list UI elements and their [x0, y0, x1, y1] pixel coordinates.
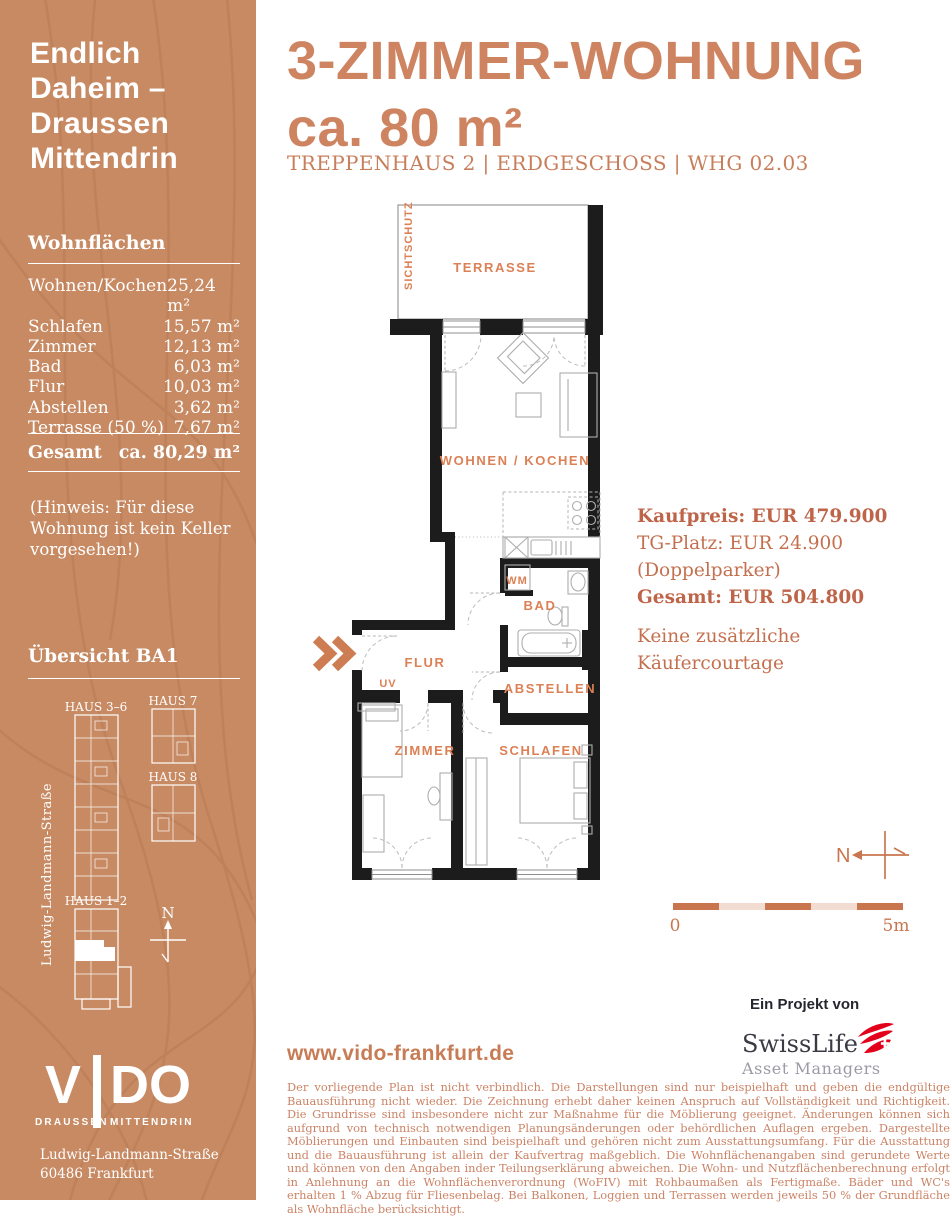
- campaign-headline: Endlich Daheim – Draussen Mittendrin: [30, 36, 178, 176]
- headline-line: Endlich: [30, 36, 178, 71]
- svg-text:N: N: [836, 845, 850, 867]
- vido-logo: V DO DRAUSSEN MITTENDRIN: [33, 1046, 233, 1141]
- living-area-table: Wohnen/Kochen25,24 m² Schlafen15,57 m² Z…: [28, 276, 240, 438]
- row-label: Abstellen: [28, 398, 109, 418]
- room-label-terrasse: TERRASSE: [453, 260, 537, 275]
- svg-text:N: N: [161, 904, 174, 922]
- divider-line: [28, 678, 240, 679]
- row-label: Flur: [28, 377, 64, 397]
- row-value: 25,24 m²: [167, 276, 240, 317]
- room-label-uv: UV: [379, 678, 396, 690]
- row-label: Zimmer: [28, 337, 96, 357]
- north-arrow-icon: N: [836, 831, 909, 879]
- row-value: 10,03 m²: [163, 377, 240, 397]
- swisslife-swoosh-icon: [855, 1022, 897, 1060]
- kaufpreis: Kaufpreis: EUR 479.900: [637, 503, 949, 530]
- vido-tagline-left: DRAUSSEN: [35, 1117, 109, 1128]
- headline-line: Daheim –: [30, 71, 178, 106]
- vido-tagline-right: MITTENDRIN: [110, 1117, 194, 1128]
- table-row: Abstellen3,62 m²: [28, 398, 240, 418]
- row-value: 7,67 m²: [174, 418, 240, 438]
- vido-logo-v: V: [45, 1055, 81, 1115]
- table-row: Schlafen15,57 m²: [28, 317, 240, 337]
- room-label-bad: BAD: [524, 598, 557, 613]
- row-value: 12,13 m²: [163, 337, 240, 357]
- gesamtpreis: Gesamt: EUR 504.800: [637, 584, 949, 611]
- haus-8-label: HAUS 8: [149, 770, 198, 784]
- furniture: [358, 333, 600, 865]
- disclaimer-text: Der vorliegende Plan ist nicht verbindli…: [287, 1081, 950, 1216]
- project-label: Ein Projekt von: [750, 996, 859, 1013]
- keller-note: (Hinweis: Für diese Wohnung ist kein Kel…: [30, 497, 236, 560]
- tg-platz: TG-Platz: EUR 24.900 (Doppelparker): [637, 530, 949, 584]
- pricing-block: Kaufpreis: EUR 479.900 TG-Platz: EUR 24.…: [637, 503, 949, 677]
- siteplan-north-icon: N: [150, 904, 186, 962]
- room-label-abstellen: ABSTELLEN: [504, 681, 596, 696]
- room-label-schlafen: SCHLAFEN: [499, 743, 583, 758]
- room-label-wm: WM: [506, 575, 528, 587]
- row-label: Wohnen/Kochen: [28, 276, 167, 317]
- scale-start: 0: [670, 916, 681, 936]
- address-city: 60486 Frankfurt: [40, 1165, 219, 1184]
- room-label-sichtschutz: SICHTSCHUTZ: [403, 201, 415, 290]
- haus-1-2-label: HAUS 1–2: [65, 894, 128, 908]
- headline-line: Draussen: [30, 106, 178, 141]
- living-area-table-title: Wohnflächen: [28, 232, 166, 254]
- north-and-scale: N 0 5m: [640, 820, 920, 940]
- table-row: Bad6,03 m²: [28, 357, 240, 377]
- page-title-line1: 3-ZIMMER-WOHNUNG: [287, 28, 865, 95]
- row-label: Schlafen: [28, 317, 103, 337]
- row-label: Terrasse (50 %): [28, 418, 164, 438]
- scale-end: 5m: [883, 916, 910, 936]
- address: Ludwig-Landmann-Straße 60486 Frankfurt: [40, 1146, 219, 1184]
- total-label: Gesamt: [28, 443, 102, 463]
- row-label: Bad: [28, 357, 62, 377]
- haus-3-6-label: HAUS 3–6: [65, 700, 128, 714]
- siteplan-title: Übersicht BA1: [28, 646, 179, 667]
- row-value: 6,03 m²: [174, 357, 240, 377]
- unit-location-highlight: [75, 940, 115, 961]
- site-plan: HAUS 3–6 HAUS 7 HAUS 8 HAUS 1–2 Ludwig-L…: [25, 690, 235, 1015]
- row-value: 15,57 m²: [163, 317, 240, 337]
- entrance-arrow-icon: [316, 639, 350, 668]
- swisslife-logo: SwissLife Asset Managers: [742, 1030, 902, 1078]
- table-row: Terrasse (50 %)7,67 m²: [28, 418, 240, 438]
- courtage-note: Keine zusätzliche Käufercourtage: [637, 623, 949, 677]
- website-url: www.vido-frankfurt.de: [287, 1042, 514, 1066]
- apartment-subtitle: TREPPENHAUS 2 | ERDGESCHOSS | WHG 02.03: [287, 151, 809, 175]
- page-title: 3-ZIMMER-WOHNUNG ca. 80 m²: [287, 28, 865, 162]
- divider-line: [28, 433, 240, 434]
- room-label-zimmer: ZIMMER: [395, 743, 456, 758]
- floor-plan: TERRASSE SICHTSCHUTZ WOHNEN / KOCHEN WM …: [300, 195, 630, 905]
- room-label-wohnen-kochen: WOHNEN / KOCHEN: [440, 453, 590, 468]
- row-value: 3,62 m²: [174, 398, 240, 418]
- scale-bar: 0 5m: [670, 903, 910, 936]
- headline-line: Mittendrin: [30, 141, 178, 176]
- haus-7-label: HAUS 7: [149, 694, 198, 708]
- divider-line: [28, 471, 240, 472]
- street-label: Ludwig-Landmann-Straße: [40, 783, 55, 966]
- swisslife-name: SwissLife: [742, 1030, 858, 1058]
- table-row: Wohnen/Kochen25,24 m²: [28, 276, 240, 317]
- room-label-flur: FLUR: [404, 655, 445, 670]
- total-value: ca. 80,29 m²: [119, 443, 240, 463]
- vido-logo-do: DO: [110, 1055, 191, 1115]
- table-row: Flur10,03 m²: [28, 377, 240, 397]
- address-street: Ludwig-Landmann-Straße: [40, 1146, 219, 1165]
- swisslife-sub: Asset Managers: [742, 1059, 902, 1078]
- branch-pattern-decoration: [0, 0, 256, 1200]
- total-row: Gesamt ca. 80,29 m²: [28, 443, 240, 463]
- divider-line: [28, 263, 240, 264]
- sidebar: Endlich Daheim – Draussen Mittendrin Woh…: [0, 0, 256, 1200]
- table-row: Zimmer12,13 m²: [28, 337, 240, 357]
